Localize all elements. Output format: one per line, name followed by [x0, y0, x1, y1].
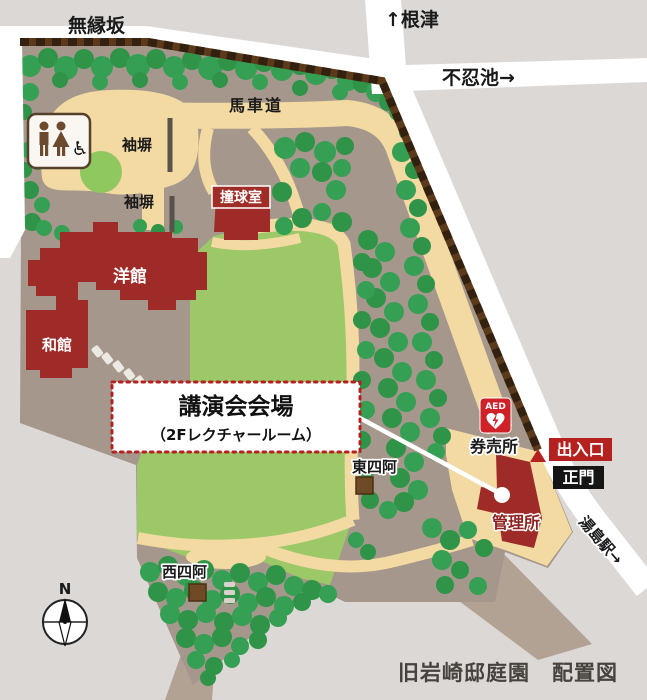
entrance-label: 出入口: [556, 440, 604, 459]
lecture-callout: 講演会会場 （2Fレクチャールーム）: [112, 382, 360, 452]
road-label-shinobazu: 不忍池→: [442, 66, 515, 89]
main-gate-badge: 正門: [553, 466, 604, 489]
wakan-label: 和館: [42, 336, 72, 354]
west-arbor-building: [189, 584, 206, 601]
road-label-nezu: ↑根津: [385, 8, 439, 31]
path-label-bashamichi: 馬車道: [229, 96, 283, 115]
aed-sign: AED: [480, 398, 511, 433]
road-muenzaka-west: [0, 26, 25, 258]
garden-map-page: 撞球室 ♿ AED 出入口 正門 無縁坂 ↑根津 不忍池→ 馬車道: [0, 0, 647, 700]
callout-target-dot: [494, 487, 510, 503]
wheelchair-icon: ♿: [71, 138, 88, 160]
west-arbor-label: 西四阿: [162, 563, 207, 581]
garden-map: 撞球室 ♿ AED 出入口 正門 無縁坂 ↑根津 不忍池→ 馬車道: [0, 0, 647, 700]
toilet-sign: ♿: [28, 114, 90, 168]
east-arbor-label: 東四阿: [352, 458, 397, 476]
east-arbor-building: [356, 477, 373, 494]
sodebei-label-1: 袖塀: [122, 136, 152, 154]
ticket-office-label: 券売所: [469, 437, 518, 456]
yokan-label: 洋館: [113, 266, 147, 287]
road-label-muenzaka: 無縁坂: [68, 14, 126, 37]
billiard-label-box: 撞球室: [212, 186, 270, 208]
billiard-label: 撞球室: [220, 189, 262, 206]
admin-office-label: 管理所: [492, 513, 540, 532]
compass-n-label: N: [59, 580, 72, 598]
aed-label: AED: [485, 402, 506, 412]
map-title: 旧岩崎邸庭園 配置図: [398, 661, 618, 685]
main-gate-label: 正門: [562, 468, 594, 487]
callout-line2: （2Fレクチャールーム）: [151, 426, 321, 444]
sodebei-label-2: 袖塀: [124, 193, 154, 211]
callout-line1: 講演会会場: [179, 393, 294, 420]
entrance-badge: 出入口: [549, 438, 612, 461]
